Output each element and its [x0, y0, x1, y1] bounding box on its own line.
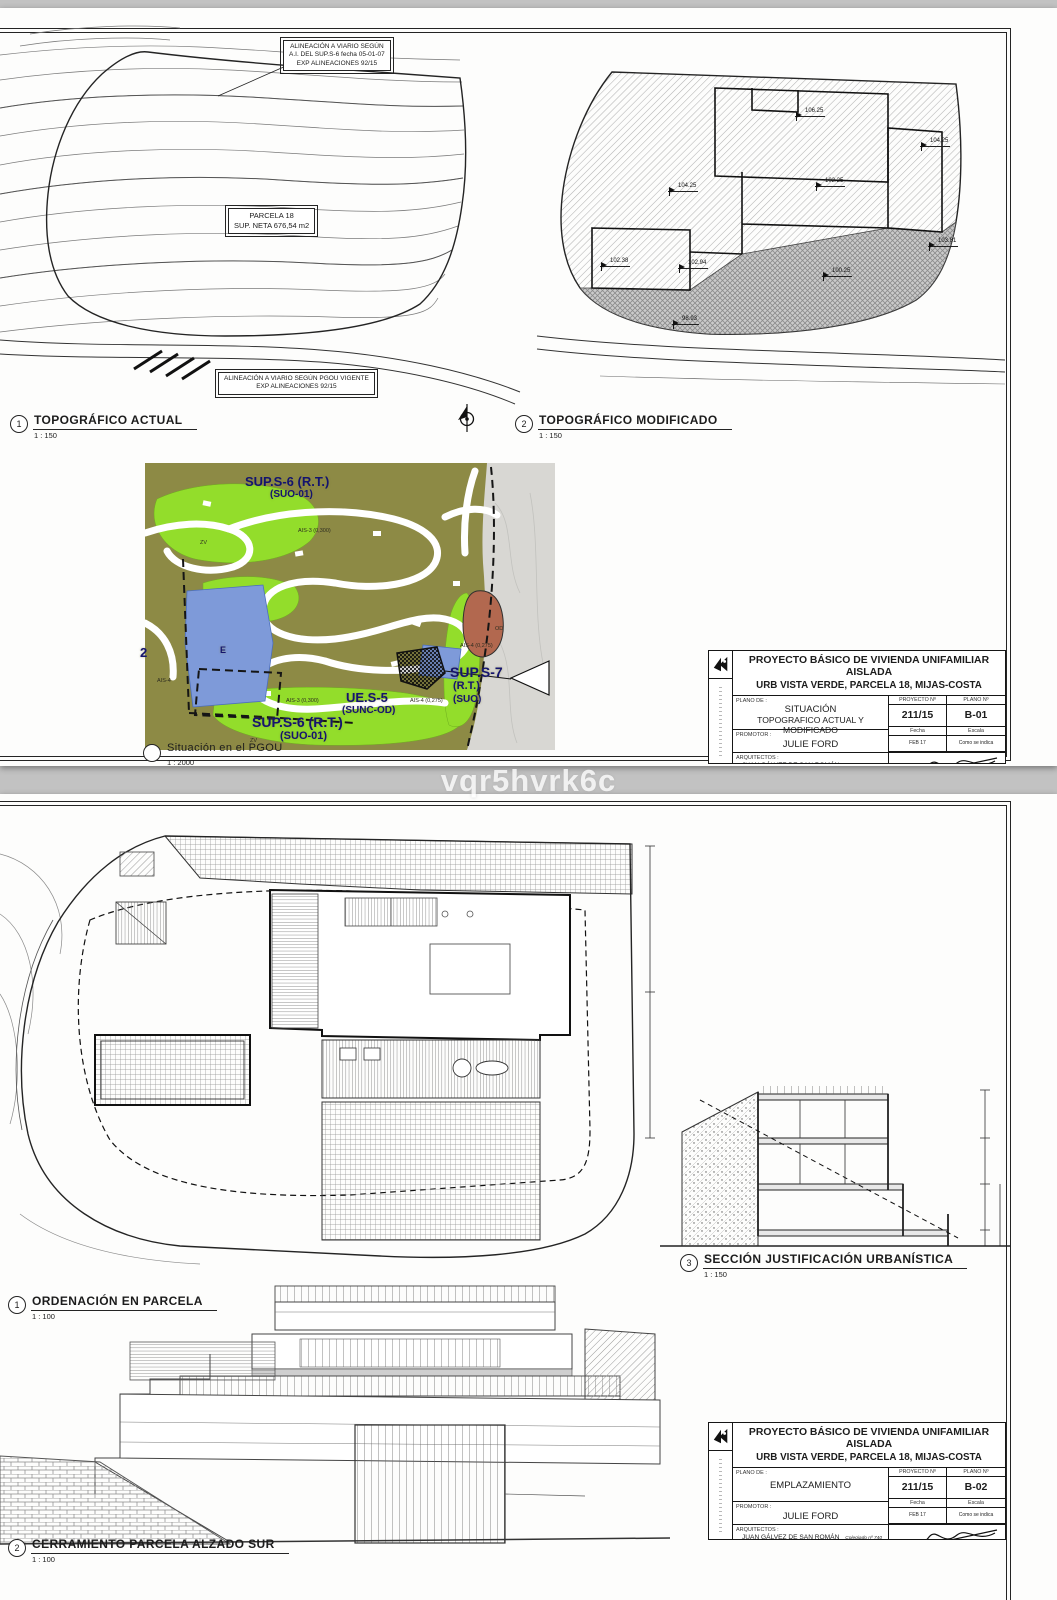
pgou-zone-label: AIS-3 (0,300) [286, 698, 319, 704]
title-block-side-strip [709, 1423, 733, 1539]
studio-logo-icon [709, 651, 732, 679]
retaining-wall [0, 1456, 230, 1544]
title-block-fineprint [719, 684, 722, 758]
pgou-label-sups6-bot: SUP.S-6 (R.T.) [252, 714, 343, 730]
project-title: PROYECTO BÁSICO DE VIVIENDA UNIFAMILIAR … [733, 651, 1005, 696]
title-block-fineprint [719, 1456, 722, 1534]
pgou-zone-label: AIS-4 [157, 678, 171, 684]
project-number-cells: PROYECTO Nº PLANO Nº 211/15 B-02 Fecha E… [889, 1468, 1005, 1524]
plano-de-cell: PLANO DE : EMPLAZAMIENTO [733, 1468, 888, 1502]
view-number: 2 [515, 415, 533, 433]
project-number-cells: PROYECTO Nº PLANO Nº 211/15 B-01 Fecha E… [889, 696, 1005, 752]
view-label-seccion: 3 SECCIÓN JUSTIFICACIÓN URBANÍSTICA 1 : … [680, 1252, 967, 1279]
view-number: 2 [8, 1539, 26, 1557]
sheet-b01: SUP.S-6 (R.T.) (SUO-01) UE.S-5 (SUNC-OD)… [0, 8, 1057, 766]
garage-door [355, 1425, 505, 1543]
parcel-area-note: PARCELA 18 SUP. NETA 676,54 m2 [228, 208, 315, 234]
view-scale: 1 : 100 [31, 1554, 289, 1564]
view-title: TOPOGRÁFICO ACTUAL [33, 413, 197, 430]
south-elevation-drawing [0, 1286, 670, 1544]
earth-hatch [682, 1092, 758, 1246]
view-label-ordenacion: 1 ORDENACIÓN EN PARCELA 1 : 100 [8, 1294, 217, 1321]
architects-cell: ARQUITECTOS : JUAN GÁLVEZ DE SAN ROMÁNCo… [733, 1525, 889, 1540]
view-number: 1 [8, 1296, 26, 1314]
watermark-text: vqr5hvrk6c [441, 763, 616, 799]
view-number: 3 [680, 1254, 698, 1272]
view-title: ORDENACIÓN EN PARCELA [31, 1294, 217, 1311]
patio [322, 1102, 540, 1240]
pgou-zone-label: AIS-4 (0,275) [410, 698, 443, 704]
studio-logo-icon [709, 1423, 732, 1451]
view-scale: 1 : 150 [538, 430, 732, 440]
pgou-label-2: 2 [140, 645, 147, 660]
title-block-b01: PROYECTO BÁSICO DE VIVIENDA UNIFAMILIAR … [708, 650, 1006, 764]
pgou-zone-label: ZV [200, 540, 207, 546]
pgou-zone-label: OD [495, 626, 503, 632]
pool [95, 1035, 250, 1105]
site-plan [0, 836, 655, 1264]
parcel-boundary-actual [47, 52, 466, 336]
sheet-number: B-02 [947, 1477, 1005, 1499]
view-scale: 1 : 150 [33, 430, 197, 440]
title-block-side-strip [709, 651, 733, 763]
signature-area [889, 1525, 1005, 1540]
view-label-situacion-pgou: Situación en el PGOU 1 : 2000 [143, 742, 297, 767]
view-title: TOPOGRÁFICO MODIFICADO [538, 413, 732, 430]
pgou-label-suncod: (SUNC-OD) [342, 705, 395, 716]
pgou-label-sups7: SUP.S-7 [450, 664, 503, 680]
dimension-line [645, 846, 655, 1138]
pgou-zone-label: AIS-4 (0,275) [460, 643, 493, 649]
view-title: Situación en el PGOU [166, 742, 297, 757]
urban-section [660, 1086, 1010, 1246]
road-modified [537, 336, 1005, 384]
project-number: 211/15 [889, 705, 947, 727]
topographic-modified [537, 72, 1005, 384]
pgou-label-suo01-top: (SUO-01) [270, 489, 313, 500]
view-scale: 1 : 100 [31, 1311, 217, 1321]
view-number: 1 [10, 415, 28, 433]
pgou-label-sups6-top: SUP.S-6 (R.T.) [245, 474, 329, 489]
section-railing [758, 1086, 888, 1094]
view-label-topografico-modificado: 2 TOPOGRÁFICO MODIFICADO 1 : 150 [515, 413, 732, 440]
pgou-label-suo: (SUO) [453, 694, 481, 705]
project-number: 211/15 [889, 1477, 947, 1499]
alignment-note-bottom: ALINEACIÓN A VIARIO SEGÚN PGOU VIGENTE E… [218, 372, 375, 395]
view-title: SECCIÓN JUSTIFICACIÓN URBANÍSTICA [703, 1252, 967, 1269]
pgou-zone-label: AIS-3 (0,300) [298, 528, 331, 534]
pgou-label-rt: (R.T.) [453, 680, 480, 692]
spot-elevation: 102.38 [600, 258, 630, 267]
alignment-hatch-marks [134, 351, 210, 379]
plano-de-cell: PLANO DE : SITUACIÓN TOPOGRAFICO ACTUAL … [733, 696, 888, 730]
spot-elevation: 102.25 [815, 178, 845, 187]
section-dimensions [980, 1090, 1000, 1246]
pgou-label-ues5: UE.S-5 [346, 690, 388, 705]
contour-lines [0, 26, 464, 332]
alignment-note-top: ALINEACIÓN A VIARIO SEGÚN A.I. DEL SUP.S… [283, 40, 391, 71]
sheet-number: B-01 [947, 705, 1005, 727]
view-scale: 1 : 150 [703, 1269, 967, 1279]
view-title: CERRAMIENTO PARCELA ALZADO SUR [31, 1537, 289, 1554]
spot-elevation: 98.93 [672, 316, 699, 325]
architects-cell: ARQUITECTOS : JUAN GÁLVEZ DE SAN ROMÁNCo… [733, 753, 889, 764]
document-page: SUP.S-6 (R.T.) (SUO-01) UE.S-5 (SUNC-OD)… [0, 0, 1057, 1600]
spot-elevation: 104.25 [920, 138, 950, 147]
pgou-label-suo01-bot: (SUO-01) [280, 730, 327, 742]
upper-terrace [165, 836, 632, 894]
spot-elevation: 102.94 [678, 260, 708, 269]
signature-area [889, 753, 1005, 764]
north-arrow-icon [458, 404, 474, 432]
pgou-label-e: E [220, 645, 226, 655]
spot-elevation: 103.81 [928, 238, 958, 247]
view-scale: 1 : 2000 [166, 757, 297, 767]
spot-elevation: 104.25 [668, 183, 698, 192]
view-number [143, 744, 161, 762]
spot-elevation: 106.25 [795, 108, 825, 117]
sheet-b02: 1 ORDENACIÓN EN PARCELA 1 : 100 3 SECCIÓ… [0, 794, 1057, 1600]
view-label-cerramiento: 2 CERRAMIENTO PARCELA ALZADO SUR 1 : 100 [8, 1537, 289, 1564]
spot-elevation: 100.25 [822, 268, 852, 277]
promotor-cell: PROMOTOR : JULIE FORD [733, 1502, 888, 1524]
view-label-topografico-actual: 1 TOPOGRÁFICO ACTUAL 1 : 150 [10, 413, 197, 440]
project-title: PROYECTO BÁSICO DE VIVIENDA UNIFAMILIAR … [733, 1423, 1005, 1468]
promotor-cell: PROMOTOR : JULIE FORD [733, 730, 888, 752]
title-block-b02: PROYECTO BÁSICO DE VIVIENDA UNIFAMILIAR … [708, 1422, 1006, 1540]
